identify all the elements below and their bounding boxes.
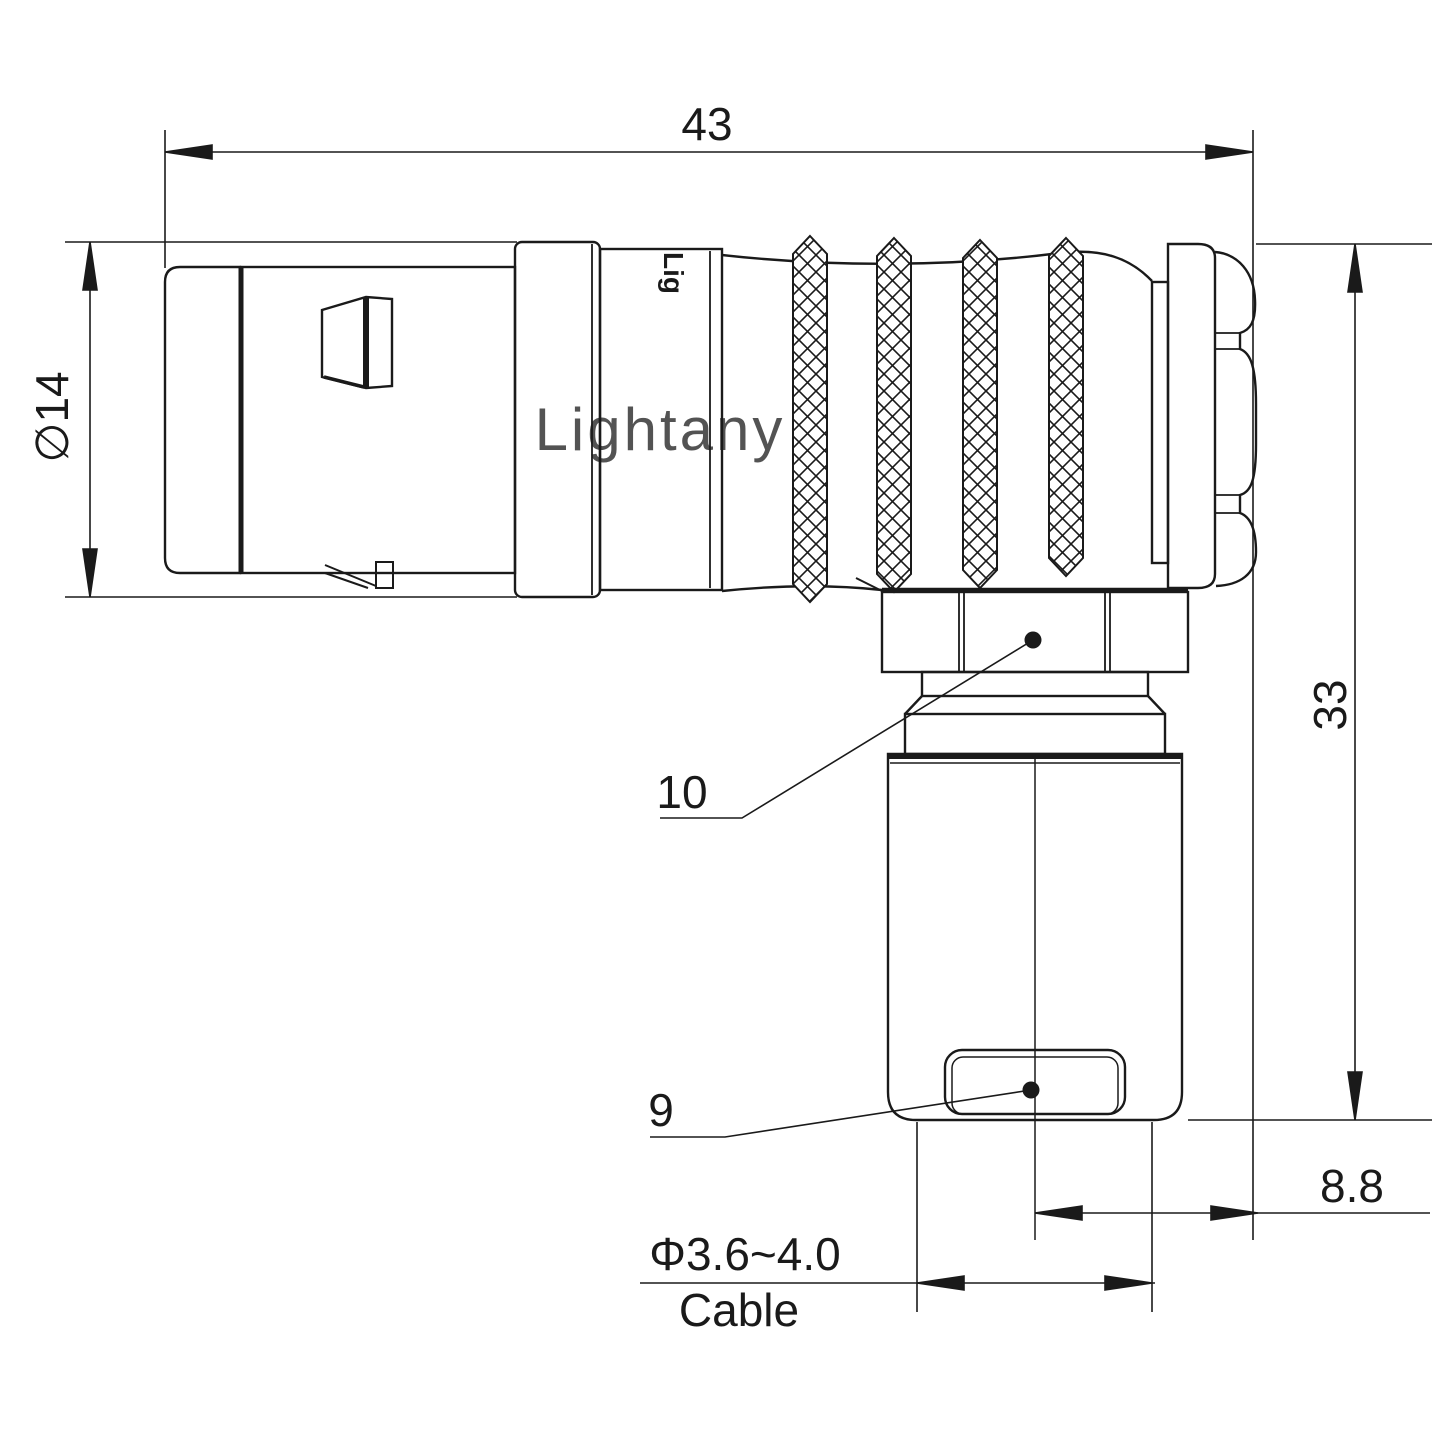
leader-line-10 — [660, 640, 1033, 818]
knurl-top-outline — [722, 252, 1152, 281]
knurl-band-3 — [963, 240, 997, 588]
arrow-cable-left — [917, 1276, 964, 1290]
arrow-33-top — [1348, 244, 1362, 292]
connector-drawing-canvas: Lightany — [0, 0, 1440, 1440]
dim-front-diameter: ∅14 — [26, 242, 517, 597]
arrow-33-bottom — [1348, 1072, 1362, 1120]
chamfer-right — [1148, 696, 1165, 714]
arrow-dia14-bottom — [83, 549, 97, 597]
arrow-cable-right — [1105, 1276, 1152, 1290]
rear-ring — [1152, 282, 1168, 563]
arrow-8-8-left — [1035, 1206, 1082, 1220]
dim-value-overall-height: 33 — [1304, 679, 1356, 730]
dim-overall-height: 33 — [1188, 244, 1432, 1120]
body-logo-text: Lig — [658, 252, 689, 294]
knurl-band-2 — [877, 238, 911, 592]
dim-overall-length: 43 — [165, 98, 1253, 1240]
back-cap-outline — [1168, 244, 1215, 588]
leader-label-9: 9 — [648, 1084, 674, 1136]
leader-label-10: 10 — [656, 766, 707, 818]
arrow-dia14-top — [83, 242, 97, 290]
mid-section-outline — [905, 714, 1165, 754]
leader-cable-clamp: 9 — [648, 1082, 1039, 1138]
technical-drawing-page: Lightany — [0, 0, 1440, 1440]
arrow-43-left — [165, 145, 212, 159]
neck-outline — [922, 672, 1148, 696]
chamfer-left — [905, 696, 922, 714]
leader-coupling-nut: 10 — [656, 632, 1041, 819]
shell-notch-block — [376, 562, 393, 588]
horizontal-connector-body — [165, 236, 1256, 602]
dim-value-cable-range: Φ3.6~4.0 — [649, 1228, 840, 1280]
vertical-elbow-body — [882, 590, 1188, 1240]
watermark-text: Lightany — [535, 396, 786, 463]
leader-dot-10 — [1025, 632, 1042, 649]
front-cap-outline — [165, 267, 240, 573]
knurl-band-4 — [1049, 238, 1083, 576]
arrow-8-8-right — [1211, 1206, 1258, 1220]
scalloped-nut-edge — [1215, 252, 1256, 586]
knurl-band-1 — [793, 236, 827, 602]
leader-dot-9 — [1023, 1082, 1040, 1099]
dim-value-front-diameter: ∅14 — [26, 371, 78, 462]
dim-value-axis-offset: 8.8 — [1320, 1160, 1384, 1212]
dim-value-overall-length: 43 — [681, 98, 732, 150]
cable-word-label: Cable — [679, 1284, 799, 1336]
dim-axis-offset: 8.8 — [1035, 1160, 1430, 1220]
key-tab — [322, 297, 392, 388]
dim-cable-range: Φ3.6~4.0 Cable — [640, 1122, 1155, 1336]
arrow-43-right — [1206, 145, 1253, 159]
